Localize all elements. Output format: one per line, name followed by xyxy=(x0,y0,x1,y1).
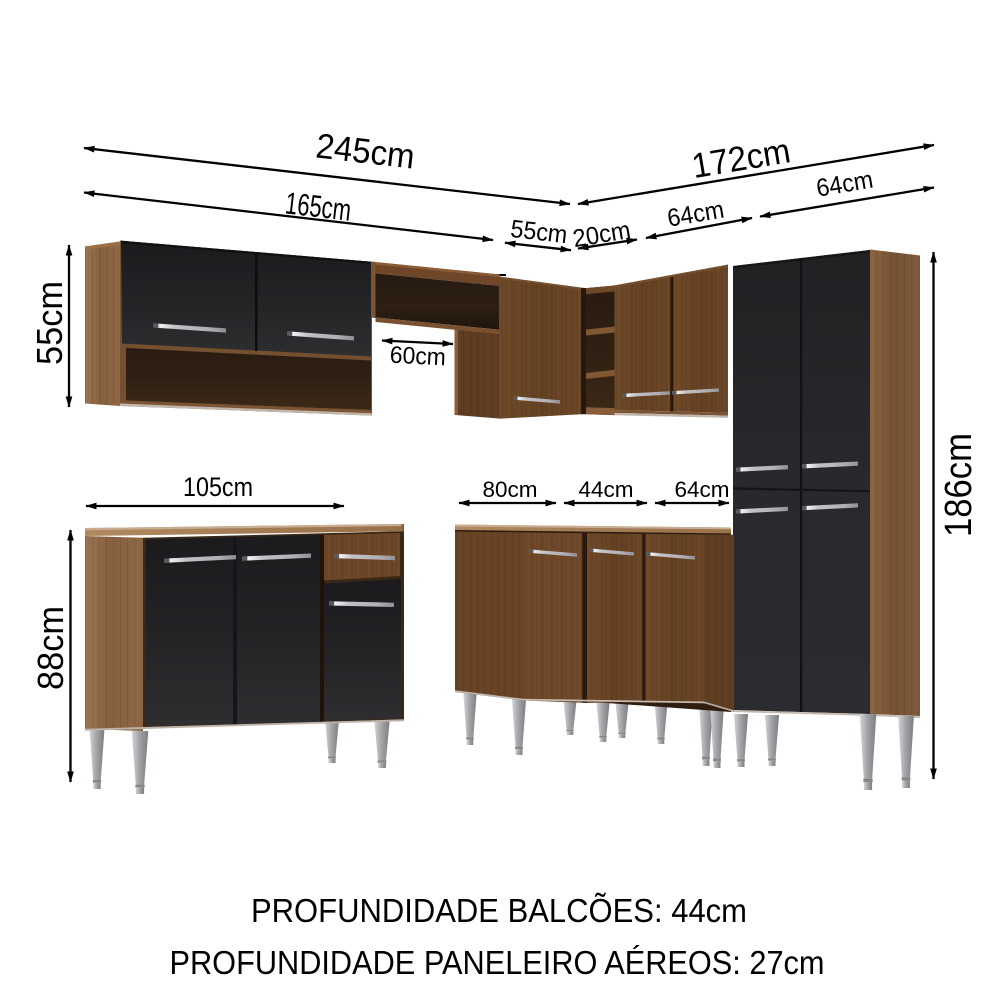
svg-text:64cm: 64cm xyxy=(814,166,875,203)
svg-text:64cm: 64cm xyxy=(665,196,726,233)
svg-text:105cm: 105cm xyxy=(183,472,253,502)
svg-text:80cm: 80cm xyxy=(483,477,538,502)
svg-text:44cm: 44cm xyxy=(579,477,634,502)
svg-text:64cm: 64cm xyxy=(675,477,730,502)
svg-text:172cm: 172cm xyxy=(689,131,793,186)
svg-text:PROFUNDIDADE PANELEIRO AÉREOS:: PROFUNDIDADE PANELEIRO AÉREOS: 27cm xyxy=(170,944,825,981)
svg-text:88cm: 88cm xyxy=(30,606,71,690)
svg-text:186cm: 186cm xyxy=(938,433,980,537)
svg-text:245cm: 245cm xyxy=(314,127,417,177)
svg-text:165cm: 165cm xyxy=(283,185,353,227)
svg-text:55cm: 55cm xyxy=(29,281,70,365)
svg-text:20cm: 20cm xyxy=(571,216,633,253)
svg-text:60cm: 60cm xyxy=(389,342,446,372)
svg-text:PROFUNDIDADE BALCÕES: 44cm: PROFUNDIDADE BALCÕES: 44cm xyxy=(251,892,747,929)
